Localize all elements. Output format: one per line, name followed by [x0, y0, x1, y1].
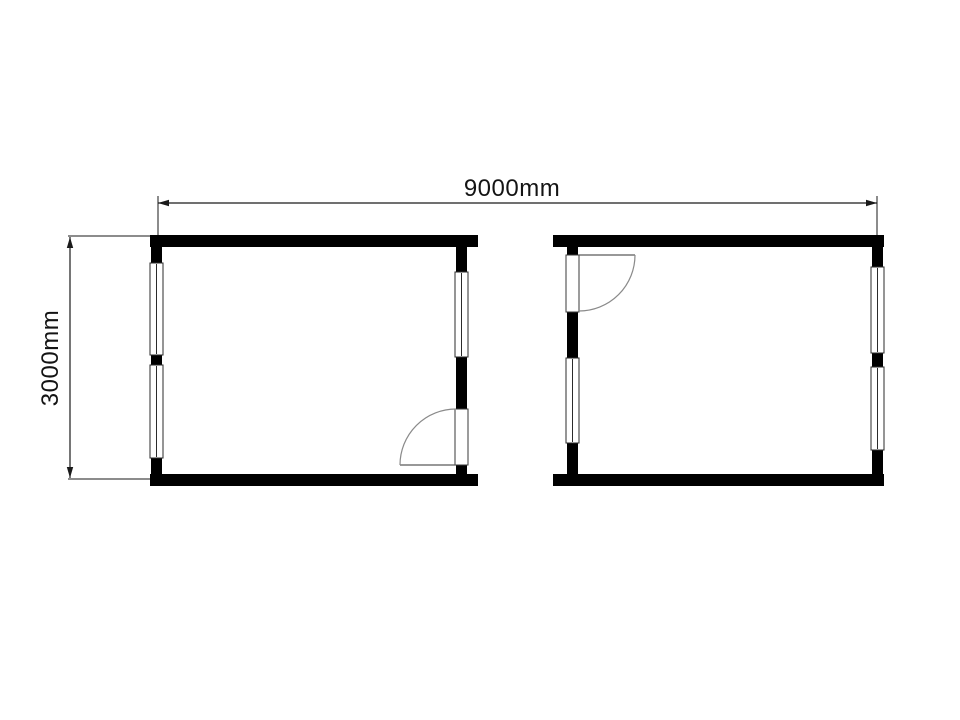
room-right-window-left-lower: [566, 358, 579, 443]
room-right-top-wall: [553, 235, 884, 247]
width-dimension-label: 9000mm: [464, 175, 560, 202]
room-right-window-right-upper: [871, 267, 884, 353]
floor-plan-svg: 9000mm 3000mm: [0, 0, 960, 720]
room-left-window-left-lower: [150, 365, 163, 458]
room-left-bottom-wall: [150, 474, 478, 486]
arrow-down-icon: [67, 467, 73, 478]
room-left-window-left-upper: [150, 263, 163, 355]
room-right-bottom-wall: [553, 474, 884, 486]
door-swing-arc: [579, 255, 635, 311]
room-left-door: [400, 409, 468, 465]
room-right-door: [566, 255, 635, 312]
room-right-window-right-lower: [871, 367, 884, 450]
width-dimension: 9000mm: [158, 175, 877, 235]
door-opening: [566, 255, 579, 312]
arrow-right-icon: [866, 200, 877, 206]
room-right: [553, 235, 884, 486]
room-left: [150, 235, 478, 486]
room-left-top-wall: [150, 235, 478, 247]
arrow-up-icon: [67, 237, 73, 248]
height-dimension-label: 3000mm: [37, 310, 64, 406]
arrow-left-icon: [158, 200, 169, 206]
height-dimension: 3000mm: [37, 236, 152, 479]
room-left-window-right-upper: [455, 272, 468, 357]
door-opening: [455, 409, 468, 465]
door-swing-arc: [400, 409, 456, 465]
floor-plan-canvas: 9000mm 3000mm: [0, 0, 960, 720]
